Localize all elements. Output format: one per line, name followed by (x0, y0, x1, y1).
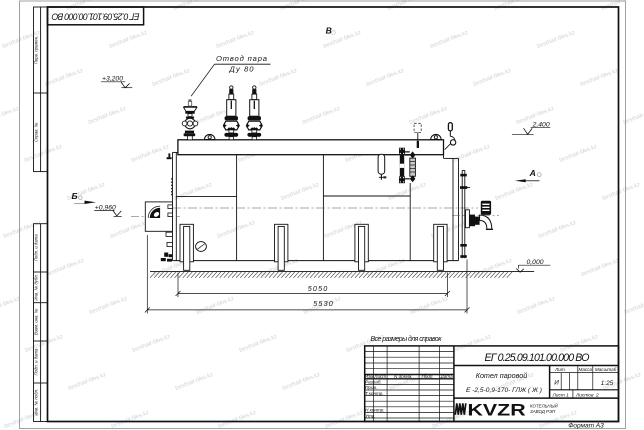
svg-text:В: В (326, 26, 332, 36)
svg-text:Е -2,5-0,9-170- ГЛЖ ( Ж ): Е -2,5-0,9-170- ГЛЖ ( Ж ) (466, 387, 542, 394)
svg-text:Подп. и дата: Подп. и дата (34, 234, 39, 262)
svg-text:Разраб.: Разраб. (365, 380, 382, 385)
svg-text:Взам. инв. №: Взам. инв. № (34, 308, 39, 335)
svg-text:Справ. №: Справ. № (34, 122, 39, 142)
svg-text:Лист: Лист (373, 374, 386, 379)
svg-text:Б: Б (72, 191, 78, 201)
svg-text:И: И (554, 380, 559, 387)
svg-text:Лит.: Лит. (554, 367, 566, 372)
svg-text:5050: 5050 (308, 284, 328, 293)
svg-text:Формат А3: Формат А3 (568, 422, 604, 429)
svg-text:Ду 80: Ду 80 (229, 65, 255, 74)
svg-text:N докум.: N докум. (394, 374, 413, 379)
svg-text:Т.контр.: Т.контр. (365, 391, 384, 396)
svg-text:Дата: Дата (440, 374, 454, 379)
svg-text:А: А (529, 168, 536, 178)
svg-text:Пров.: Пров. (365, 385, 377, 390)
svg-text:ЗАВОД РЭП: ЗАВОД РЭП (530, 409, 556, 414)
svg-text:5530: 5530 (313, 299, 333, 308)
svg-text:Масштаб: Масштаб (595, 367, 617, 372)
svg-text:ЕГ 0.25.09.101.00.000 ВО: ЕГ 0.25.09.101.00.000 ВО (51, 12, 139, 22)
svg-text:Масса: Масса (579, 367, 593, 372)
svg-text:ЕГ 0.25.09.101.00.000 ВО: ЕГ 0.25.09.101.00.000 ВО (485, 352, 590, 364)
svg-text:2: 2 (595, 393, 599, 399)
svg-text:Инв. № дубл.: Инв. № дубл. (34, 274, 39, 300)
svg-text:Котел паровой: Котел паровой (476, 371, 528, 380)
svg-text:КОТЕЛЬНЫЙ: КОТЕЛЬНЫЙ (530, 404, 558, 409)
svg-text:Листов: Листов (575, 393, 594, 399)
svg-text:Инв. № подл.: Инв. № подл. (34, 389, 39, 416)
svg-text:Утв.: Утв. (365, 413, 375, 418)
svg-text:Отвод пара: Отвод пара (216, 54, 267, 63)
svg-text:Н.контр.: Н.контр. (365, 408, 384, 413)
svg-text:Все размеры для справок: Все размеры для справок (371, 335, 443, 343)
svg-text:1:25: 1:25 (601, 380, 614, 387)
svg-text:Лист 1: Лист 1 (552, 393, 570, 399)
svg-text:Перв. примен.: Перв. примен. (34, 36, 39, 65)
svg-text:Подп. и дата: Подп. и дата (34, 348, 39, 376)
svg-text:Изм.: Изм. (365, 374, 375, 379)
svg-text:KVZR: KVZR (468, 402, 527, 420)
svg-text:Подп.: Подп. (422, 374, 434, 379)
